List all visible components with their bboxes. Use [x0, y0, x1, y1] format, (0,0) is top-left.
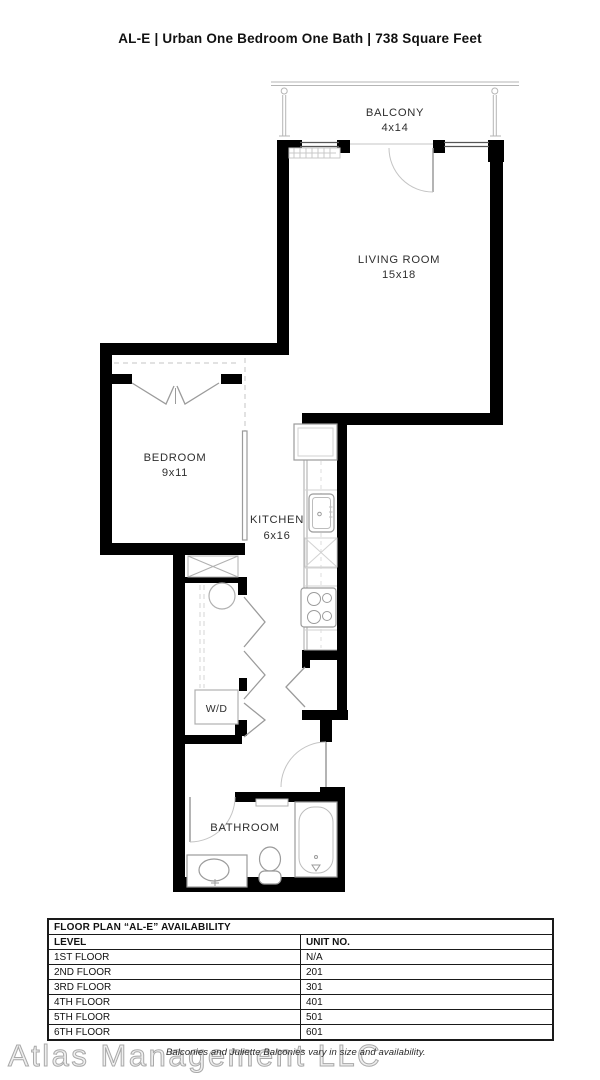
- living-room-dims: 15x18: [382, 269, 416, 281]
- unit-cell: 401: [301, 995, 554, 1010]
- floor-plan: W/D BALC: [0, 0, 600, 910]
- bedroom-label: BEDROOM: [144, 452, 207, 464]
- refrigerator: [294, 424, 337, 460]
- table-row: 5TH FLOOR 501: [48, 1010, 553, 1025]
- balcony-label: BALCONY: [366, 107, 424, 119]
- unit-cell: 301: [301, 980, 554, 995]
- level-cell: 3RD FLOOR: [48, 980, 301, 995]
- level-cell: 2ND FLOOR: [48, 965, 301, 980]
- level-cell: 4TH FLOOR: [48, 995, 301, 1010]
- table-row: 1ST FLOOR N/A: [48, 950, 553, 965]
- balcony-disclaimer: Balconies and Juliette Balconies vary in…: [166, 1047, 426, 1058]
- table-row: 2ND FLOOR 201: [48, 965, 553, 980]
- column-header-unit: UNIT NO.: [301, 935, 554, 950]
- bedroom-dims: 9x11: [162, 467, 188, 479]
- stove: [301, 588, 336, 627]
- pantry-door: [286, 667, 305, 707]
- unit-cell: N/A: [301, 950, 554, 965]
- living-room-bottom-wall: [302, 413, 503, 425]
- table-title: FLOOR PLAN “AL-E” AVAILABILITY: [48, 919, 553, 935]
- table-header-row: LEVEL UNIT NO.: [48, 935, 553, 950]
- kitchen-sink: [309, 494, 334, 532]
- wd-closet-doors: [244, 597, 265, 737]
- bathtub: [295, 802, 337, 877]
- balcony-dims: 4x14: [381, 122, 408, 134]
- availability-table: FLOOR PLAN “AL-E” AVAILABILITY LEVEL UNI…: [47, 918, 554, 1041]
- kitchen-dims: 6x16: [263, 530, 290, 542]
- table-row: 3RD FLOOR 301: [48, 980, 553, 995]
- room-labels: BALCONY 4x14 LIVING ROOM 15x18 BEDROOM 9…: [144, 107, 441, 834]
- bathroom-label: BATHROOM: [210, 822, 279, 834]
- bathroom-door: [190, 797, 235, 842]
- entry-door: [281, 742, 326, 787]
- unit-cell: 201: [301, 965, 554, 980]
- living-room-label: LIVING ROOM: [358, 254, 440, 266]
- kitchen-east-wall: [337, 420, 347, 720]
- water-heater: [209, 583, 235, 609]
- closet-rod: [200, 585, 204, 688]
- floor-plan-flyer: AL-E | Urban One Bedroom One Bath | 738 …: [0, 0, 600, 1080]
- table-row: 4TH FLOOR 401: [48, 995, 553, 1010]
- bedroom-kitchen-divider: [243, 358, 248, 540]
- kitchen-label: KITCHEN: [250, 514, 304, 526]
- vanity-sink: [187, 855, 247, 887]
- toilet: [259, 847, 281, 884]
- unit-cell: 501: [301, 1010, 554, 1025]
- washer-dryer: W/D: [195, 690, 238, 724]
- column-header-level: LEVEL: [48, 935, 301, 950]
- linen-closet: [188, 556, 238, 577]
- balcony-door: [350, 144, 433, 192]
- bathroom-shelf: [256, 799, 288, 806]
- hall-left-wall: [173, 555, 185, 892]
- level-cell: 1ST FLOOR: [48, 950, 301, 965]
- level-cell: 5TH FLOOR: [48, 1010, 301, 1025]
- washer-dryer-label: W/D: [206, 703, 228, 715]
- table-title-row: FLOOR PLAN “AL-E” AVAILABILITY: [48, 919, 553, 935]
- baseboard-heater: [289, 148, 340, 158]
